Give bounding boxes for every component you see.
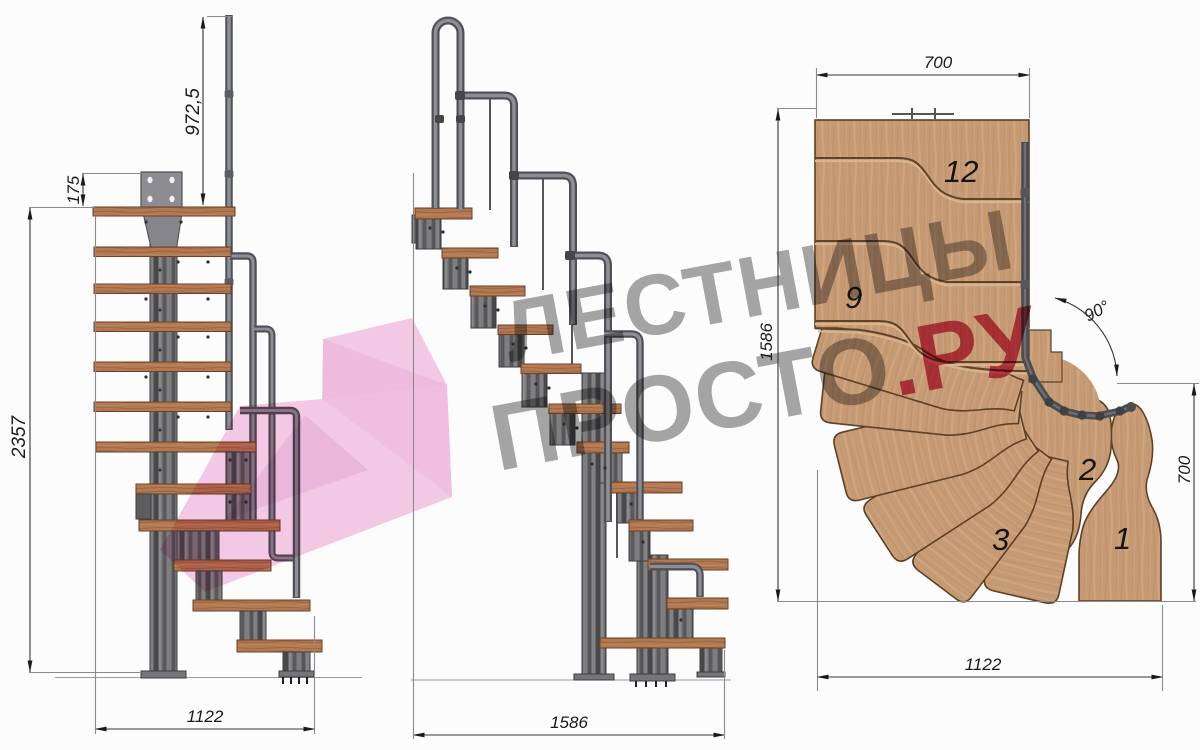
svg-text:2: 2 — [1078, 452, 1096, 487]
svg-text:2357: 2357 — [9, 414, 30, 459]
svg-text:1586: 1586 — [550, 713, 588, 732]
svg-text:1586: 1586 — [757, 323, 776, 361]
svg-text:700: 700 — [924, 53, 953, 72]
svg-text:972,5: 972,5 — [183, 88, 204, 136]
svg-text:12: 12 — [944, 154, 978, 189]
svg-text:1: 1 — [1114, 521, 1131, 556]
svg-text:3: 3 — [992, 522, 1009, 557]
svg-text:1122: 1122 — [187, 707, 224, 726]
svg-text:700: 700 — [1175, 455, 1194, 484]
svg-text:175: 175 — [64, 175, 83, 204]
svg-text:1122: 1122 — [965, 655, 1002, 674]
